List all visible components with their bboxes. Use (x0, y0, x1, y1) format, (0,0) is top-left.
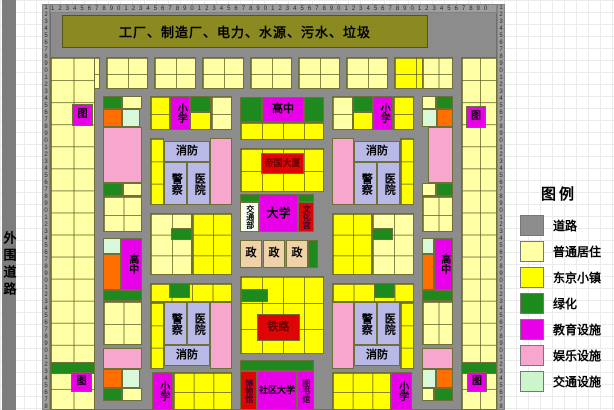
residential-cell (422, 96, 436, 109)
empire-state-building: 帝国大厦 (261, 153, 304, 174)
hospital: 医院 (377, 162, 400, 205)
legend-item: 东京小镇 (520, 266, 612, 288)
transport-bureau: 交通部 (240, 202, 259, 232)
fire-dept: 消防 (354, 141, 400, 162)
residential-pair (422, 57, 453, 89)
tokyo-town-block (393, 96, 414, 130)
police: 警察 (354, 302, 377, 345)
library-cell: 图 (72, 104, 93, 126)
tokyo-town-block (332, 283, 414, 302)
culture-palace: 文化宫 (298, 202, 314, 232)
legend-label: 交通设施 (553, 373, 601, 390)
transit-cell (122, 109, 140, 127)
university: 大学 (259, 194, 298, 232)
legend-item: 娱乐设施 (520, 344, 612, 366)
fire-dept: 消防 (164, 345, 210, 366)
residential-cell (122, 96, 142, 109)
legend-item: 道路 (520, 214, 612, 236)
tokyo-town-block (240, 122, 324, 140)
legend-item: 教育设施 (520, 318, 612, 340)
tokyo-town-block (150, 283, 232, 302)
primary-school: 小学 (152, 372, 173, 410)
residential-block (103, 196, 142, 232)
tokyo-town-block (332, 372, 391, 410)
tokyo-town-block (173, 372, 232, 410)
legend-item: 绿化 (520, 292, 612, 314)
legend-label: 道路 (553, 217, 577, 234)
green-cell (374, 283, 395, 298)
legend-title: 图例 (506, 183, 612, 204)
green-cell (103, 183, 123, 196)
green-cell (308, 240, 318, 268)
legend-swatch (520, 345, 544, 366)
legend-label: 教育设施 (553, 321, 601, 338)
residential-block (422, 301, 453, 345)
green-cell (434, 388, 453, 401)
orange-cell (437, 109, 453, 127)
green-strip (240, 360, 314, 371)
green-cell (169, 283, 190, 298)
legend-label: 绿化 (553, 295, 577, 312)
residential-pair (154, 57, 196, 89)
residential-block (372, 213, 414, 275)
fire-dept: 消防 (164, 141, 210, 162)
green-cell (436, 96, 453, 109)
legend-swatch (520, 215, 544, 236)
legend-swatch (520, 293, 544, 314)
entertainment-block (428, 127, 453, 183)
green-cell (298, 194, 314, 202)
entertainment-block (103, 348, 142, 369)
orange-cell (422, 254, 434, 290)
legend-swatch (520, 267, 544, 288)
primary-school: 小学 (391, 372, 412, 410)
book-library: 图书馆 (297, 371, 314, 410)
residential-block (211, 96, 232, 130)
police: 警察 (164, 162, 187, 205)
tokyo-town-block (400, 302, 414, 369)
residential-cell (122, 388, 142, 401)
residential-block (150, 213, 192, 275)
legend-items: 道路普通居住东京小镇绿化教育设施娱乐设施交通设施 (506, 210, 612, 396)
primary-school: 小学 (170, 96, 190, 130)
legend-label: 娱乐设施 (553, 347, 601, 364)
tokyo-town-cell (353, 112, 373, 130)
transit-cell (122, 369, 140, 388)
transit-cell (422, 369, 436, 388)
green-strip (422, 290, 453, 301)
orange-cell (103, 369, 122, 388)
tokyo-town-block (150, 138, 164, 205)
green-cell (304, 97, 324, 122)
green-cell (241, 289, 268, 302)
legend-swatch (520, 241, 544, 262)
railway: 铁路 (257, 314, 300, 341)
legend: 图例 道路普通居住东京小镇绿化教育设施娱乐设施交通设施 (506, 183, 612, 396)
hospital: 医院 (187, 302, 210, 345)
residential-cell (123, 183, 142, 196)
high-school: 高中 (434, 238, 453, 290)
transit-cell (422, 238, 434, 254)
entertainment-block (332, 138, 354, 205)
legend-label: 普通居住 (553, 243, 601, 260)
residential-cell (422, 388, 434, 401)
transit-cell (422, 109, 437, 127)
primary-school: 小学 (373, 96, 393, 130)
entertainment-block (103, 127, 142, 183)
tokyo-town-block (150, 302, 164, 369)
tokyo-town-block (400, 138, 414, 205)
green-cell (103, 388, 122, 401)
legend-item: 交通设施 (520, 370, 612, 392)
green-cell (103, 96, 122, 109)
tokyo-town-block (192, 213, 232, 275)
community-college: 社区大学 (257, 371, 297, 410)
residential-pair (346, 57, 388, 89)
library-cell: 图 (467, 372, 487, 392)
government-cell: 政 (286, 240, 308, 268)
hospital: 医院 (377, 302, 400, 345)
orange-cell (103, 254, 121, 290)
museum: 博物馆 (240, 371, 257, 410)
orange-cell (103, 109, 122, 127)
green-cell (240, 97, 262, 122)
legend-label: 东京小镇 (553, 269, 601, 286)
legend-item: 普通居住 (520, 240, 612, 262)
library-cell: 图 (71, 372, 92, 392)
green-cell (190, 96, 211, 112)
residential-pair (202, 57, 244, 89)
green-cell (436, 183, 453, 196)
residential-pair (298, 57, 340, 89)
residential-block (332, 96, 353, 130)
tokyo-town-cell (190, 112, 211, 130)
green-strip (103, 290, 142, 301)
green-cell (353, 96, 373, 112)
green-cell (240, 194, 260, 202)
entertainment-block (332, 302, 354, 369)
residential-pair (106, 57, 148, 89)
residential-pair (250, 57, 292, 89)
legend-swatch (520, 319, 544, 340)
residential-block (422, 196, 453, 232)
police: 警察 (354, 162, 377, 205)
hospital: 医院 (187, 162, 210, 205)
residential-block (103, 301, 142, 345)
fire-dept: 消防 (354, 345, 400, 366)
government-cell: 政 (263, 240, 285, 268)
orange-cell (436, 369, 453, 388)
green-cell (171, 228, 192, 240)
transit-cell (103, 238, 121, 254)
high-school: 高中 (121, 238, 142, 290)
residential-cell (422, 183, 436, 196)
entertainment-block (422, 348, 453, 369)
legend-swatch (520, 371, 544, 392)
tokyo-town-block (332, 213, 372, 275)
high-school-central: 高中 (262, 97, 304, 122)
entertainment-block (210, 138, 232, 205)
government-cell: 政 (240, 240, 262, 268)
green-cell (372, 228, 393, 240)
tokyo-town-block (150, 96, 170, 130)
library-cell: 图 (466, 106, 486, 128)
police: 警察 (164, 302, 187, 345)
entertainment-block (210, 302, 232, 369)
